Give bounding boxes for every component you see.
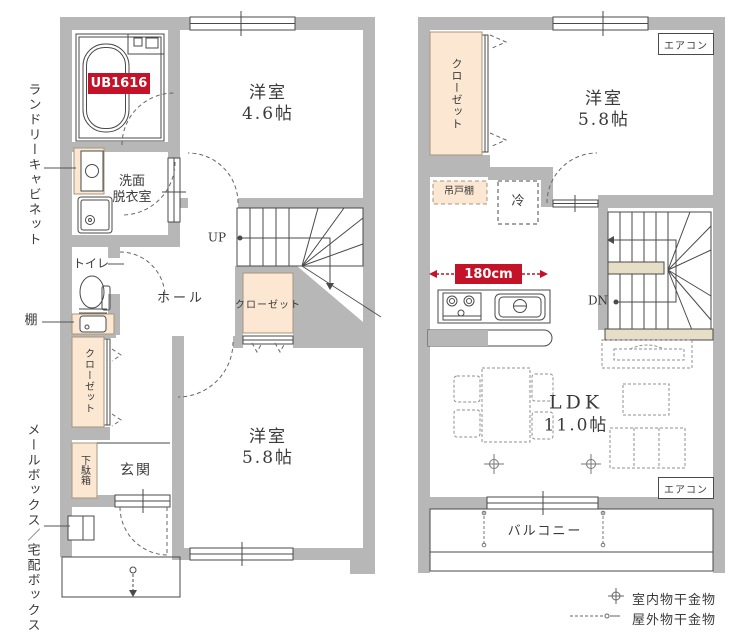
aircon-bottom-label: エアコン bbox=[658, 477, 714, 499]
room-name: LDK bbox=[544, 392, 609, 416]
stair-landing-bottom bbox=[605, 329, 713, 340]
outdoor-drying-icon bbox=[601, 511, 605, 547]
legend-outdoor-label: 屋外物干金物 bbox=[632, 609, 716, 628]
room-size: 5.8帖 bbox=[242, 448, 294, 469]
washer-pan-icon bbox=[78, 197, 112, 233]
closet-hall-door bbox=[243, 336, 293, 344]
room-size: 11.0帖 bbox=[544, 415, 609, 436]
mailbox-label: メールボックス／宅配ボックス bbox=[23, 423, 42, 633]
porch-area bbox=[62, 557, 180, 597]
window-bedroom2-bottom bbox=[190, 542, 293, 566]
window-balcony-sliding bbox=[487, 491, 598, 515]
legend-symbols bbox=[570, 588, 624, 618]
indoor-drying-symbols bbox=[484, 454, 601, 474]
balcony-label: バルコニー bbox=[508, 524, 583, 540]
chair-icon bbox=[454, 376, 480, 402]
legend-outdoor-icon bbox=[570, 614, 620, 618]
indoor-drying-icon bbox=[581, 454, 601, 474]
kitchen-width-label: 180cm bbox=[455, 264, 522, 284]
laundry-cabinet-label: ランドリーキャビネット bbox=[24, 83, 43, 248]
door-sill-washroom bbox=[162, 158, 186, 222]
aircon-top-label: エアコン bbox=[658, 33, 714, 55]
stair-landing bbox=[608, 262, 664, 274]
stairs-floor2 bbox=[605, 212, 713, 340]
side-table-icon bbox=[623, 384, 669, 415]
closet-side-fold-mark bbox=[112, 349, 121, 361]
toilet-label: トイレ bbox=[73, 257, 109, 272]
closet-2f-label: クローゼット bbox=[448, 58, 464, 130]
washroom-label: 洗面 脱衣室 bbox=[112, 174, 151, 207]
room-size: 4.6帖 bbox=[242, 104, 294, 125]
mailbox-icon bbox=[68, 516, 94, 540]
closet-side-door bbox=[104, 339, 110, 425]
outdoor-drying-icon bbox=[482, 511, 486, 547]
shoebox-label: 下駄箱 bbox=[77, 455, 92, 485]
toilet-bowl-icon bbox=[80, 276, 104, 308]
entrance-door-arc bbox=[120, 507, 168, 555]
legend-indoor-icon bbox=[608, 588, 624, 604]
shelf-basin-icon bbox=[80, 316, 106, 332]
ldk-label: LDK 11.0帖 bbox=[544, 392, 609, 437]
sofa-icon bbox=[610, 428, 685, 468]
room-name: 洋室 bbox=[242, 83, 294, 104]
window-bedroom1-top bbox=[190, 11, 295, 36]
floor-plan-drawing bbox=[0, 0, 750, 640]
closet-side-label: クローゼット bbox=[81, 348, 96, 414]
wash-basin-icon bbox=[81, 151, 103, 191]
chair-icon bbox=[454, 410, 480, 437]
bedroom1-door-arc bbox=[188, 153, 238, 203]
kitchen-counter-icon bbox=[438, 290, 550, 323]
room-name: 洋室 bbox=[242, 427, 294, 448]
entrance-label: 玄関 bbox=[120, 462, 152, 480]
hall-label: ホール bbox=[157, 291, 205, 307]
windows bbox=[104, 11, 648, 566]
bedroom-2f-door-arc bbox=[547, 153, 597, 203]
bedroom-2f-label: 洋室 5.8帖 bbox=[578, 89, 630, 132]
closet-2f-door bbox=[482, 35, 488, 152]
floor-plan: UB1616 洋室 4.6帖 洗面 脱衣室 トイレ 棚 ランドリーキャビネット … bbox=[0, 0, 750, 640]
entrance-sliding-door bbox=[115, 489, 170, 513]
door-sill-bedroom-2f bbox=[553, 195, 598, 212]
bedroom2-label: 洋室 5.8帖 bbox=[242, 427, 294, 470]
entry-direction-marker bbox=[129, 567, 137, 597]
bedroom2-door-arc bbox=[178, 342, 233, 397]
indoor-drying-icon bbox=[484, 454, 504, 474]
closet-hall-label: クローゼット bbox=[235, 300, 301, 313]
unit-bath-label: UB1616 bbox=[88, 73, 150, 94]
hanging-cupboard-label: 吊戸棚 bbox=[444, 186, 474, 199]
room-size: 5.8帖 bbox=[578, 110, 630, 131]
tv-board-icon bbox=[602, 340, 692, 368]
shelf-label: 棚 bbox=[24, 313, 37, 329]
closet-2f-fold-mark bbox=[490, 35, 506, 49]
dn-label: DN bbox=[588, 294, 608, 309]
bath-door-arc bbox=[122, 93, 174, 145]
fridge-label: 冷 bbox=[511, 194, 524, 210]
room-name: 洋室 bbox=[578, 89, 630, 110]
up-label: UP bbox=[208, 231, 226, 246]
floor1-walls bbox=[60, 17, 375, 574]
bedroom1-label: 洋室 4.6帖 bbox=[242, 83, 294, 126]
legend-indoor-label: 室内物干金物 bbox=[632, 589, 716, 608]
dining-table-icon bbox=[482, 368, 530, 442]
window-floor2-top bbox=[553, 11, 648, 36]
